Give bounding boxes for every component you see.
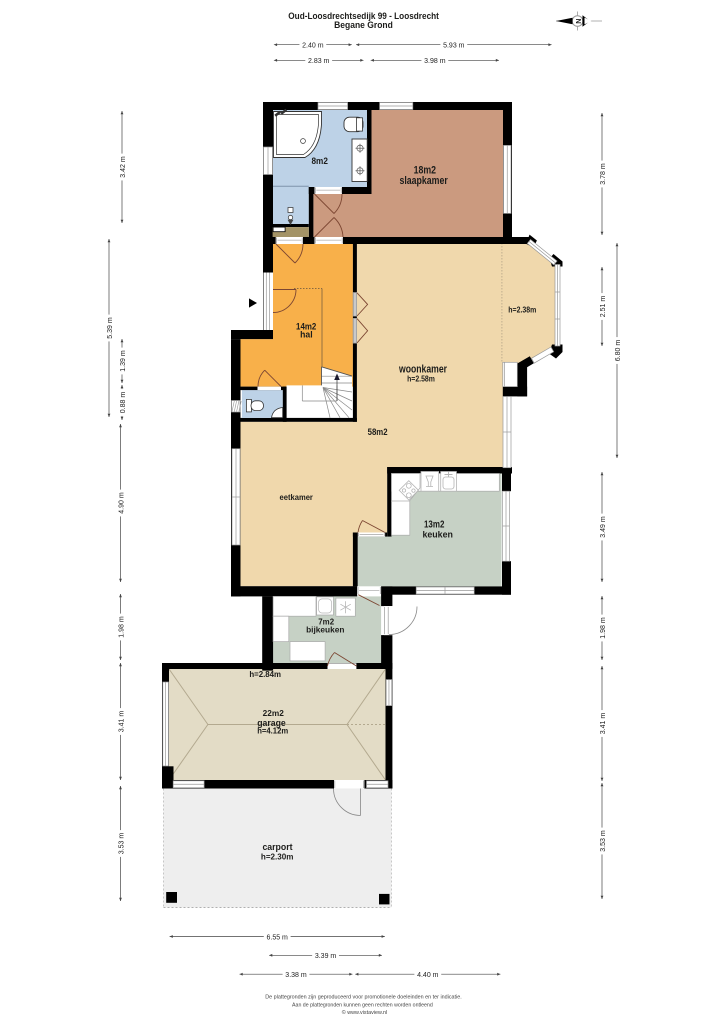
svg-text:Aan de plattegronden kunnen ge: Aan de plattegronden kunnen geen rechten… [292, 1003, 433, 1009]
svg-text:h=2.30m: h=2.30m [261, 852, 294, 861]
svg-text:3.41 m: 3.41 m [118, 711, 125, 733]
svg-text:6.55 m: 6.55 m [266, 934, 288, 941]
svg-text:5.93 m: 5.93 m [443, 43, 465, 50]
svg-text:3.42 m: 3.42 m [120, 156, 127, 178]
svg-text:bijkeuken: bijkeuken [306, 624, 344, 634]
svg-text:N: N [574, 19, 581, 24]
svg-text:3.78 m: 3.78 m [600, 163, 607, 185]
svg-text:Begane Grond: Begane Grond [334, 20, 393, 31]
svg-text:h=2.84m: h=2.84m [249, 670, 281, 679]
svg-text:3.39 m: 3.39 m [315, 953, 337, 960]
svg-text:8m2: 8m2 [312, 156, 328, 167]
svg-text:3.49 m: 3.49 m [600, 516, 607, 538]
svg-text:3.53 m: 3.53 m [600, 830, 607, 852]
svg-text:4.90 m: 4.90 m [118, 492, 125, 514]
svg-text:5.39 m: 5.39 m [107, 317, 114, 339]
svg-text:1.98 m: 1.98 m [600, 617, 607, 639]
svg-text:0.88 m: 0.88 m [120, 392, 127, 414]
svg-text:2.51 m: 2.51 m [600, 296, 607, 318]
svg-text:58m2: 58m2 [368, 427, 388, 437]
svg-text:4.40 m: 4.40 m [417, 972, 439, 979]
svg-text:3.41 m: 3.41 m [600, 713, 607, 735]
svg-text:© www.vistaview.nl: © www.vistaview.nl [342, 1009, 388, 1016]
svg-text:6.80 m: 6.80 m [615, 340, 622, 362]
svg-text:h=2.58m: h=2.58m [407, 374, 435, 383]
svg-text:h=4.12m: h=4.12m [257, 727, 288, 736]
svg-text:h=2.38m: h=2.38m [508, 306, 536, 315]
svg-text:1.98 m: 1.98 m [118, 616, 125, 638]
svg-text:keuken: keuken [422, 529, 453, 540]
svg-text:2.83 m: 2.83 m [308, 58, 330, 65]
svg-text:carport: carport [262, 842, 292, 852]
svg-text:hal: hal [300, 330, 313, 340]
svg-text:3.38 m: 3.38 m [285, 972, 307, 979]
svg-text:22m2: 22m2 [263, 709, 285, 718]
svg-text:1.39 m: 1.39 m [120, 350, 127, 372]
svg-text:eetkamer: eetkamer [280, 493, 313, 502]
svg-text:De plattegronden zijn geproduc: De plattegronden zijn geproduceerd voor … [265, 995, 462, 1001]
svg-text:slaapkamer: slaapkamer [399, 175, 448, 187]
svg-text:2.40 m: 2.40 m [302, 43, 324, 50]
svg-text:3.53 m: 3.53 m [118, 833, 125, 855]
svg-text:3.98 m: 3.98 m [424, 58, 446, 65]
